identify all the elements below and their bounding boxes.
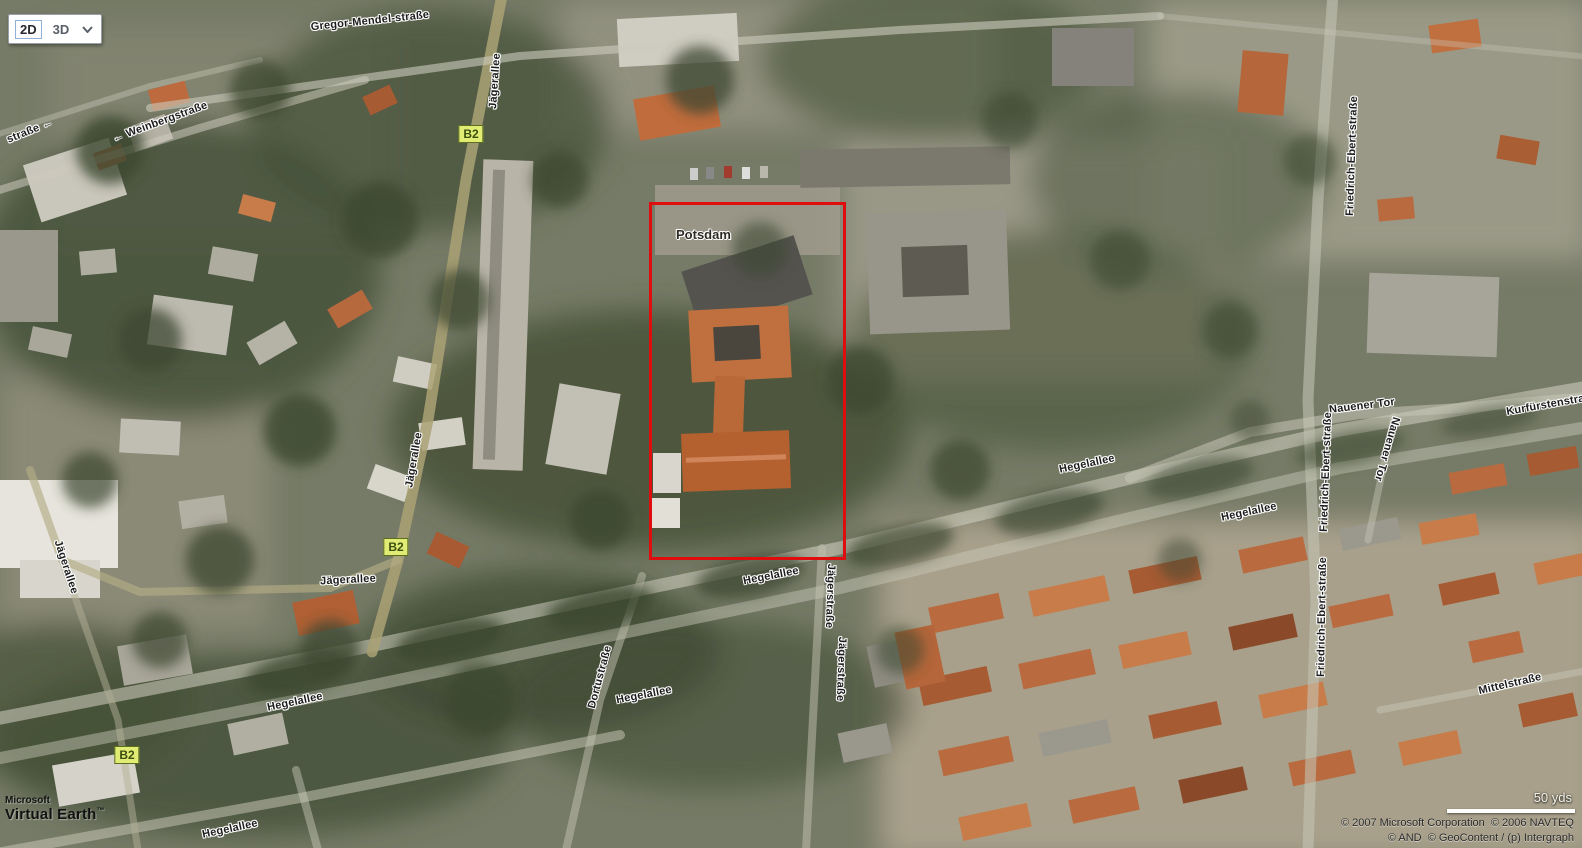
brand-virtual-earth: Virtual Earth™ <box>5 807 105 823</box>
copyright-line-1: © 2007 Microsoft Corporation © 2006 NAVT… <box>1341 817 1574 829</box>
virtual-earth-logo: Microsoft Virtual Earth™ <box>5 796 105 822</box>
copyright-line-2: © AND © GeoContent / (p) Intergraph <box>1388 832 1574 844</box>
map-mode-control[interactable]: 2D 3D <box>8 14 102 44</box>
route-badge-b2-south: B2 <box>114 746 139 764</box>
mode-3d-button[interactable]: 3D <box>48 20 75 39</box>
scale-bar <box>1447 809 1575 813</box>
map-viewport[interactable]: Potsdam Gregor-Mendel-straße ← Weinbergs… <box>0 0 1582 848</box>
highlight-rectangle <box>649 202 846 560</box>
scale-label: 50 yds <box>1534 790 1572 805</box>
route-badge-b2-north: B2 <box>458 125 483 143</box>
trademark-symbol: ™ <box>97 806 105 815</box>
route-badge-b2-mid: B2 <box>383 538 408 556</box>
chevron-down-icon[interactable] <box>80 24 95 35</box>
place-label-potsdam: Potsdam <box>676 227 731 242</box>
mode-2d-button[interactable]: 2D <box>15 20 42 39</box>
